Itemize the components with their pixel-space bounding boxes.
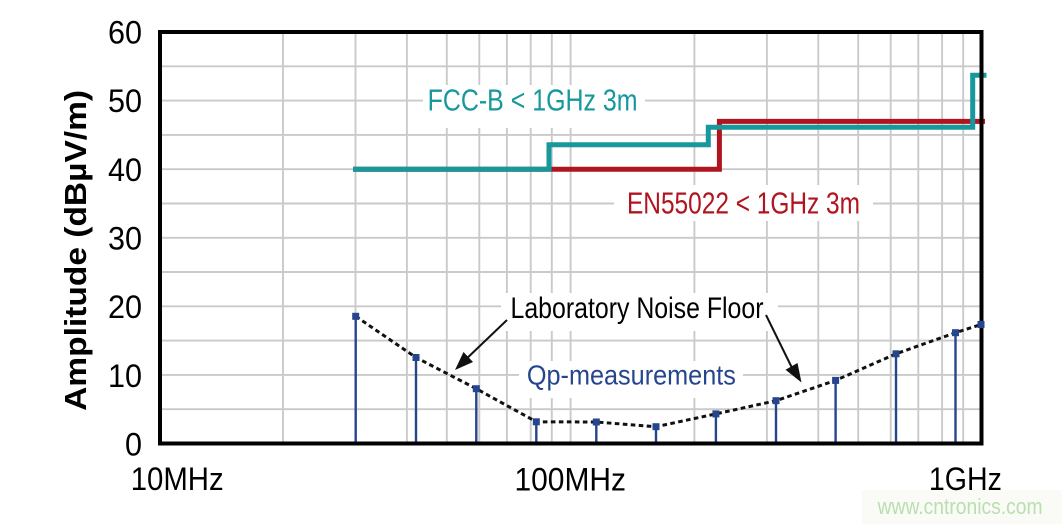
svg-text:1GHz: 1GHz — [929, 461, 1002, 497]
svg-text:10MHz: 10MHz — [131, 461, 224, 497]
svg-text:EN55022 < 1GHz 3m: EN55022 < 1GHz 3m — [627, 185, 860, 220]
svg-text:Qp-measurements: Qp-measurements — [527, 360, 736, 391]
svg-text:www.cntronics.com: www.cntronics.com — [877, 494, 1043, 519]
svg-text:30: 30 — [108, 221, 142, 257]
svg-text:10: 10 — [108, 358, 142, 394]
svg-text:20: 20 — [108, 289, 142, 325]
svg-text:60: 60 — [108, 15, 142, 51]
svg-text:Laboratory Noise Floor: Laboratory Noise Floor — [511, 292, 764, 325]
svg-text:40: 40 — [108, 152, 142, 188]
svg-text:0: 0 — [125, 427, 142, 463]
svg-text:FCC-B < 1GHz 3m: FCC-B < 1GHz 3m — [428, 83, 638, 118]
svg-text:100MHz: 100MHz — [515, 462, 627, 498]
svg-text:Amplitude (dBµV/m): Amplitude (dBµV/m) — [58, 90, 93, 411]
svg-text:50: 50 — [108, 83, 142, 119]
